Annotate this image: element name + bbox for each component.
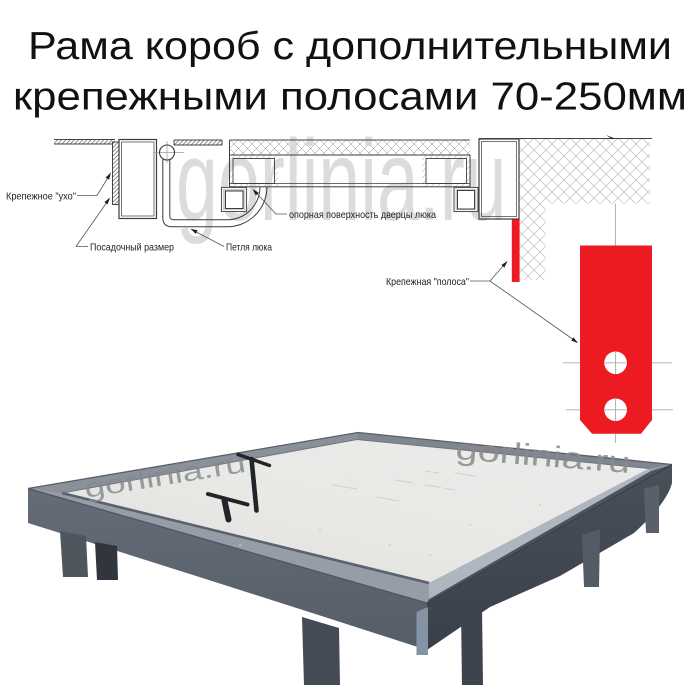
svg-text:опорная поверхность дверцы люк: опорная поверхность дверцы люка: [289, 210, 436, 221]
svg-text:Рама короб с дополнительными: Рама короб с дополнительными: [28, 25, 672, 68]
svg-text:Крепежная "полоса": Крепежная "полоса": [386, 277, 469, 288]
svg-text:Петля люка: Петля люка: [226, 243, 272, 254]
svg-text:крепежными полосами 70-250мм: крепежными полосами 70-250мм: [13, 76, 687, 119]
svg-text:Посадочный размер: Посадочный размер: [90, 243, 174, 254]
svg-text:Крепежное "ухо": Крепежное "ухо": [6, 192, 76, 203]
svg-text:gorlinia.ru: gorlinia.ru: [176, 116, 507, 245]
